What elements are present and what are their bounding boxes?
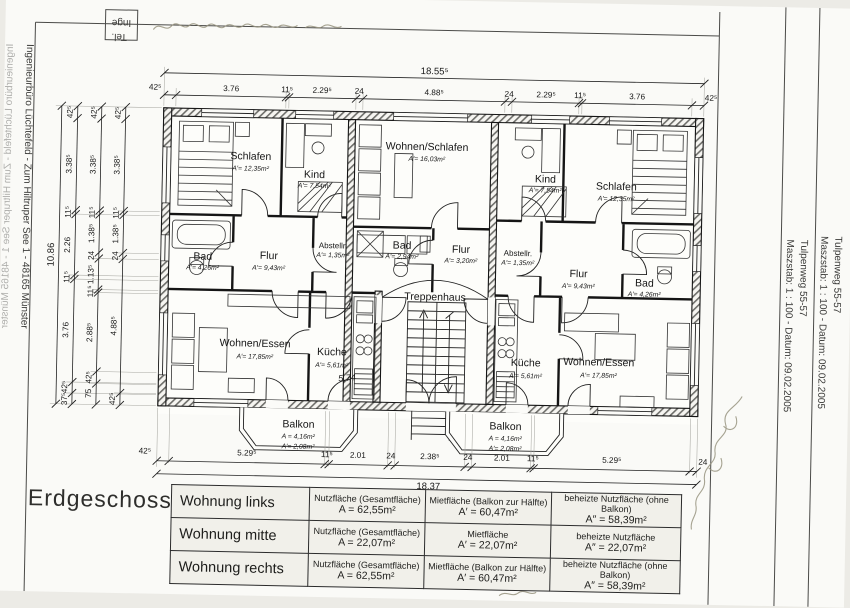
nutzflaeche-rechts-value: A = 62,55m² [310, 569, 421, 583]
dim-left-middle-2: 11⁵ [88, 206, 97, 218]
room-area-wohnen-schlafen: A′= 16,03m² [407, 156, 445, 164]
room-area-bad-left: A′= 4,26m² [185, 264, 220, 272]
dim-left-outer-5: 3.76 [61, 321, 70, 338]
mietflaeche-links: Mietfläche (Balkon zur Hälfte) A′ = 60,4… [425, 490, 552, 526]
room-area1-balkon-left: A = 4,16m² [281, 433, 316, 441]
room-label-schlafen-left: Schlafen [230, 150, 271, 163]
room-label-bad-left: Bad [193, 250, 212, 262]
room-label-wohnen-essen-left: Wohnen/Essen [219, 337, 290, 350]
building: Schlafen A′= 12,35m² Kind A′= 7,54m² Woh… [157, 108, 704, 459]
dim-left-inner-6: 42⁵ [108, 393, 117, 406]
room-label-wohnen-essen-right: Wohnen/Essen [563, 356, 634, 369]
room-area-schlafen-right: A′= 12,35m² [597, 196, 635, 204]
handwritten-note-bottom [499, 591, 536, 596]
room-area2-balkon-right: A′= 2,08m² [488, 445, 523, 453]
room-area-wohnen-essen-left: A′= 17,85m² [235, 353, 273, 361]
title-strip2-project: Tulpenweg 55-57 [831, 236, 844, 314]
dim-top-8: 11⁵ [574, 91, 586, 100]
dim-left-outer-3: 2.26 [63, 236, 72, 253]
room-label-wohnen-schlafen: Wohnen/Schlafen [386, 140, 469, 154]
apartment-name-links: Wohnung links [171, 485, 310, 521]
beheizte-rechts-value: A″ = 58,39m² [552, 579, 677, 594]
dim-left-middle-0: 42⁵ [90, 106, 99, 119]
dim-top-total: 18.55⁵ [421, 66, 449, 78]
dim-left-inner-5: 4.88⁵ [109, 316, 118, 336]
dim-bottom-5: 2.38⁵ [420, 452, 440, 461]
room-label-balkon-right: Balkon [489, 420, 521, 433]
room-area-kind-right: A′= 7,54m² [528, 187, 563, 195]
room-label-bad-middle: Bad [393, 239, 412, 251]
scanned-floorplan-page: { "sheet": { "floor_title": "Erdgeschoss… [0, 0, 850, 599]
room-label-flur-right: Flur [569, 268, 588, 280]
beheizte-rechts-label: beheizte Nutzfläche (ohne Balkon) [552, 559, 677, 582]
dim-top-2: 11⁵ [281, 85, 293, 94]
left-margin-office-text-bleed: Ingenieurbüro Lüchtefeld - Zum Hiltruper… [0, 44, 16, 329]
left-margin-office-text: Ingenieurbüro Lüchtefeld - Zum Hiltruper… [18, 44, 35, 329]
nutzflaeche-mitte-value: A = 22,07m² [311, 536, 422, 550]
room-area-bad-right: A′= 4,26m² [627, 291, 662, 299]
room-area1-balkon-right: A = 4,16m² [488, 435, 523, 443]
dim-left-inner-0: 42⁵ [114, 107, 123, 120]
dim-bottom-8: 11⁵ [527, 454, 539, 463]
dim-top-5: 4.88⁵ [424, 88, 444, 97]
mietflaeche-mitte-value: A′ = 22,07m² [427, 538, 548, 552]
room-label-kind-left: Kind [304, 169, 325, 181]
dim-left-outer-7: 37⁵ [60, 393, 69, 406]
dim-bottom-6: 24 [463, 453, 473, 462]
dim-bottom-10: 24 [698, 458, 708, 467]
corner-fragment-tel: Tel. [111, 31, 127, 42]
room-label-kueche-left: Küche [317, 346, 347, 359]
mietflaeche-rechts-value: A′ = 60,47m² [426, 571, 547, 585]
dim-left-inner-3: 1.38⁵ [111, 224, 120, 244]
room-area-abstell-right: A′= 1,35m² [500, 260, 535, 268]
dim-top-4: 24 [355, 87, 365, 96]
room-area-flur-right: A′= 9,43m² [561, 283, 596, 291]
dim-left-outer-6: 42⁵ [60, 381, 69, 394]
room-area2-balkon-left: A′= 2,08m² [281, 443, 316, 451]
dim-left-middle-8: 42⁵ [84, 371, 93, 384]
nutzflaeche-rechts: Nutzfläche (Gesamtfläche) A = 62,55m² [308, 553, 425, 588]
dim-bottom-0: 42⁵ [139, 446, 152, 455]
room-label-bad-right: Bad [635, 277, 654, 289]
floor-title: Erdgeschoss [28, 484, 172, 514]
corner-fragment-inge: Inge [111, 17, 131, 28]
dim-left-middle-3: 1.38⁵ [87, 224, 96, 244]
apartment-name-rechts: Wohnung rechts [170, 551, 309, 587]
title-strip1-meta: Maszstab: 1 : 100 - Datum: 09.02.2005 [781, 239, 795, 413]
dim-top-0: 42⁵ [149, 83, 162, 92]
room-label-balkon-left: Balkon [282, 418, 314, 431]
dim-left-inner-1: 3.38⁵ [112, 155, 121, 175]
nutzflaeche-links-value: A = 62,55m² [312, 503, 423, 517]
room-area-schlafen-left: A′= 12,35m² [231, 165, 269, 173]
room-label-abstell-right: Abstellr. [504, 249, 533, 259]
dim-top-3: 2.29⁵ [312, 86, 332, 95]
dim-top-7: 2.29⁵ [536, 90, 556, 99]
dim-bottom-2: 11⁵ [321, 450, 333, 459]
dim-left-middle-5: 1.13⁵ [86, 265, 95, 285]
dim-left-total: 10.86 [46, 243, 57, 267]
dim-left-outer-2: 11⁵ [64, 206, 73, 218]
mietflaeche-rechts: Mietfläche (Balkon zur Hälfte) A′ = 60,4… [424, 556, 551, 592]
nutzflaeche-mitte: Nutzfläche (Gesamtfläche) A = 22,07m² [308, 520, 425, 555]
room-label-treppenhaus: Treppenhaus [404, 291, 466, 304]
dim-bottom-4: 24 [386, 451, 396, 460]
room-label-abstell-left: Abstellr. [319, 241, 348, 251]
mietflaeche-mitte: Mietfläche A′ = 22,07m² [424, 523, 551, 559]
dim-left-outer-4: 11⁵ [62, 271, 71, 283]
room-area-kueche-left: A′= 5,61m² [314, 362, 349, 370]
room-area-kind-left: A′= 7,54m² [297, 183, 332, 191]
room-area-bad-middle: A′= 2,94m² [384, 253, 419, 261]
dim-left-inner-2: 11⁵ [112, 207, 121, 219]
room-area-wohnen-essen-right: A′= 17,85m² [579, 372, 617, 380]
room-label-flur-middle: Flur [452, 244, 471, 256]
dim-left-middle-6: 11⁵ [86, 285, 95, 297]
title-strip2-meta: Maszstab: 1 : 100 - Datum: 09.02.2005 [815, 236, 829, 410]
nutzflaeche-links: Nutzfläche (Gesamtfläche) A = 62,55m² [309, 487, 426, 522]
scan-sheet: Schlafen A′= 12,35m² Kind A′= 7,54m² Woh… [0, 0, 850, 608]
room-area-flur-left: A′= 9,43m² [251, 265, 286, 273]
room-label-flur-left: Flur [260, 250, 279, 262]
beheizte-mitte: beheizte Nutzfläche A″ = 22,07m² [550, 525, 681, 561]
dim-bottom-1: 5.29⁵ [237, 448, 257, 457]
dim-left-inner-4: 24 [111, 251, 120, 261]
room-area-abstell-left: A′= 1,35m² [315, 252, 350, 260]
dim-top-9: 3.76 [629, 92, 646, 101]
dim-left-outer-0: 42⁵ [66, 106, 75, 119]
dim-top-10: 42⁵ [705, 94, 718, 103]
dim-left-middle-9: 75 [84, 388, 93, 398]
dim-bottom-7: 2.01 [494, 454, 511, 463]
room-area-kueche-right: A′= 5,61m² [508, 373, 543, 381]
beheizte-rechts: beheizte Nutzfläche (ohne Balkon) A″ = 5… [550, 558, 681, 594]
handwritten-correction: 5,74 [338, 372, 356, 383]
beheizte-links: beheizte Nutzfläche (ohne Balkon) A″ = 5… [551, 492, 682, 528]
dim-bottom-9: 5.29⁵ [602, 456, 622, 465]
room-label-kueche-right: Küche [511, 357, 541, 370]
mietflaeche-links-value: A′ = 60,47m² [428, 505, 549, 519]
dim-top-6: 24 [505, 90, 515, 99]
dim-left-middle-7: 2.88⁵ [85, 323, 94, 343]
room-label-kind-right: Kind [535, 173, 556, 185]
room-area-flur-middle: A′= 3,20m² [443, 257, 478, 265]
title-strip1-project: Tulpenweg 55-57 [797, 240, 810, 318]
apartment-name-mitte: Wohnung mitte [170, 518, 309, 554]
dim-bottom-3: 2.01 [350, 451, 367, 460]
room-label-schlafen-right: Schlafen [596, 181, 637, 194]
area-summary-table: Wohnung links Nutzfläche (Gesamtfläche) … [169, 484, 682, 594]
dim-left-middle-4: 24 [87, 250, 96, 260]
dim-left-middle-1: 3.38⁵ [88, 155, 97, 175]
beheizte-mitte-value: A″ = 22,07m² [553, 541, 678, 556]
dim-top-1: 3.76 [223, 84, 240, 93]
beheizte-links-label: beheizte Nutzfläche (ohne Balkon) [554, 493, 679, 516]
dim-left-outer-1: 3.38⁵ [64, 154, 73, 174]
